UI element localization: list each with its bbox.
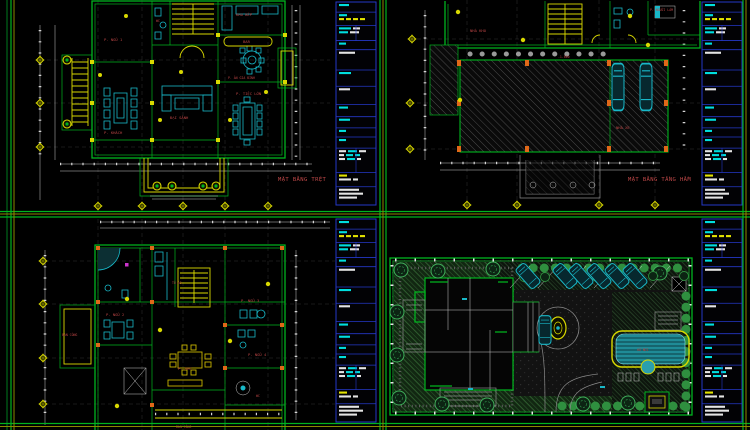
cad-viewer: P. NGỦ 1 WC KHU BẾP BAR P. ĂN GIA ĐÌNH P… xyxy=(0,0,750,430)
legend-text-bar xyxy=(705,371,710,373)
grid-axis-marker xyxy=(595,201,604,210)
grid-axis-marker xyxy=(264,202,273,211)
legend-text-bar xyxy=(705,119,716,121)
legend-text-bar xyxy=(705,43,712,45)
legend-text-bar xyxy=(339,52,355,54)
legend-text-bar xyxy=(705,88,716,90)
legend-text-bar xyxy=(719,178,724,180)
legend-text-bar xyxy=(714,150,723,152)
legend-text-bar xyxy=(339,72,351,74)
legend-text-bar xyxy=(348,367,357,369)
legend-text-bar xyxy=(705,197,723,199)
bush-icon xyxy=(541,273,550,282)
legend-text-bar xyxy=(357,375,361,377)
label-level: -1.600 xyxy=(558,55,570,59)
legend-text-bar xyxy=(705,107,714,109)
label-wc-upper: WC xyxy=(256,394,260,398)
tree-icon xyxy=(621,396,635,410)
legend-text-bar xyxy=(339,14,347,16)
legend-text-bar xyxy=(359,367,366,369)
hall-sofa xyxy=(162,86,212,111)
legend-text-bar xyxy=(339,248,348,250)
grid-axis-marker xyxy=(39,354,48,363)
legend-text-bar xyxy=(705,178,717,180)
legend-text-bar xyxy=(705,175,713,177)
legend-text-bar xyxy=(716,31,725,33)
tree-icon xyxy=(390,348,404,362)
legend-text-bar xyxy=(705,406,725,408)
legend-text-bar xyxy=(339,119,350,121)
fountain xyxy=(550,317,566,339)
grid-axis-marker xyxy=(36,99,45,108)
sheet-title-ground-floor: MẶT BẰNG TRỆT xyxy=(278,175,327,183)
legend-text-bar xyxy=(705,269,721,271)
legend-text-bar xyxy=(719,395,724,397)
tree-icon xyxy=(390,305,404,319)
label-banquet: P. TIỆC LỚN xyxy=(236,91,262,96)
legend-text-bar xyxy=(705,375,711,377)
legend-text-bar xyxy=(339,31,348,33)
legend-text-bar xyxy=(339,189,359,191)
legend-text-bar xyxy=(339,260,346,262)
tree-icon xyxy=(431,264,445,278)
grid-axis-marker xyxy=(513,201,522,210)
legend-text-bar xyxy=(360,235,365,237)
legend-text-bar xyxy=(339,414,357,416)
legend-text-bar xyxy=(339,88,350,90)
legend-text-bar xyxy=(339,371,344,373)
grid-axis-marker xyxy=(221,202,230,211)
label-living: P. KHÁCH xyxy=(104,130,123,135)
legend-text-bar xyxy=(726,235,731,237)
sheet-basement-plan: NHÀ KHO P. NGƯỜI LÀM -1.600 NHÀ XE MẶT B… xyxy=(410,0,700,205)
legend-text-bar xyxy=(705,189,725,191)
label-bedroom2: P. NGỦ 2 xyxy=(106,312,124,317)
legend-text-bar xyxy=(339,269,355,271)
tree-icon xyxy=(486,262,500,276)
legend-text-bar xyxy=(719,235,724,237)
legend-text-bar xyxy=(339,27,351,29)
legend-text-bar xyxy=(350,248,359,250)
legend-text-bar xyxy=(339,4,349,6)
legend-text-bar xyxy=(705,18,710,20)
legend-text-bar xyxy=(339,406,359,408)
legend-text-bar xyxy=(705,231,713,233)
cad-canvas: P. NGỦ 1 WC KHU BẾP BAR P. ĂN GIA ĐÌNH P… xyxy=(0,0,750,430)
legend-text-bar xyxy=(353,244,360,246)
tree-icon xyxy=(480,398,494,412)
legend-text-bar xyxy=(339,43,346,45)
legend-text-bar xyxy=(705,305,716,307)
legend-text-bar xyxy=(339,244,351,246)
legend-text-bar xyxy=(353,27,360,29)
living-room-furniture xyxy=(104,88,137,129)
legend-text-bar xyxy=(359,150,366,152)
label-pool: HỒ BƠI xyxy=(637,347,649,352)
grid-axis-marker xyxy=(36,143,45,152)
legend-text-bar xyxy=(360,18,365,20)
legend-text-bar xyxy=(719,244,726,246)
legend-text-bar xyxy=(716,248,725,250)
legend-text-bar xyxy=(719,18,724,20)
legend-text-bar xyxy=(339,18,344,20)
legend-text-bar xyxy=(339,150,346,152)
grid-axis-marker xyxy=(651,201,660,210)
legend-text-bar xyxy=(705,289,717,291)
legend-text-bar xyxy=(339,305,350,307)
label-maid-room: P. NGƯỜI LÀM xyxy=(650,7,673,12)
sheet-title-basement: MẶT BẰNG TẦNG HẦM xyxy=(628,175,691,183)
legend-text-bar xyxy=(705,347,712,349)
legend-text-bar xyxy=(348,150,357,152)
legend-text-bar xyxy=(705,244,717,246)
grid-axis-marker xyxy=(463,201,472,210)
tree-icon xyxy=(392,391,406,405)
legend-text-bar xyxy=(339,178,351,180)
legend-text-bar xyxy=(705,248,714,250)
label-kitchen: KHU BẾP xyxy=(236,12,253,17)
grid-axis-marker xyxy=(406,99,415,108)
legend-text-bar xyxy=(725,367,732,369)
legend-text-bar xyxy=(705,27,717,29)
legend-text-bar xyxy=(339,158,345,160)
legend-text-bar xyxy=(705,193,729,195)
label-wardrobe: TỦ ÁO xyxy=(172,280,182,285)
legend-text-bar xyxy=(705,392,713,394)
legend-text-bar xyxy=(346,18,351,20)
grid-axis-marker xyxy=(406,145,415,154)
legend-text-bar xyxy=(346,235,351,237)
legend-text-bar xyxy=(705,367,712,369)
legend-text-bar xyxy=(705,260,712,262)
legend-text-bar xyxy=(712,154,719,156)
legend-text-bar xyxy=(339,356,346,358)
legend-text-bar xyxy=(339,410,363,412)
tree-icon xyxy=(435,397,449,411)
label-bar: BAR xyxy=(243,39,251,44)
legend-text-bar xyxy=(339,324,348,326)
legend-text-bar xyxy=(346,154,353,156)
car-icon xyxy=(640,64,652,111)
legend-text-bar xyxy=(339,336,350,338)
legend-text-bar xyxy=(353,235,358,237)
legend-text-bar xyxy=(705,235,710,237)
label-balcony-left: BAN CÔNG xyxy=(62,332,77,337)
legend-text-bar xyxy=(705,356,712,358)
banquet-table xyxy=(233,97,262,145)
legend-text-bar xyxy=(705,139,712,141)
legend-text-bar xyxy=(705,130,712,132)
legend-text-bar xyxy=(339,193,363,195)
legend-text-bar xyxy=(705,154,710,156)
legend-text-bar xyxy=(705,410,729,412)
legend-text-bar xyxy=(725,150,732,152)
grid-axis-marker xyxy=(179,202,188,211)
bush-icon xyxy=(649,272,658,281)
tree-icon xyxy=(576,397,590,411)
legend-text-bar xyxy=(712,371,719,373)
legend-text-bar xyxy=(339,395,351,397)
legend-text-bar xyxy=(713,375,721,377)
legend-text-bar xyxy=(346,371,353,373)
legend-text-bar xyxy=(712,18,717,20)
legend-text-bar xyxy=(705,158,711,160)
label-bedroom3: P. NGỦ 3 xyxy=(241,298,259,303)
legend-text-bar xyxy=(339,392,347,394)
legend-text-bar xyxy=(339,289,351,291)
legend-text-bar xyxy=(705,4,715,6)
legend-text-bar xyxy=(339,154,344,156)
bush-icon xyxy=(680,272,689,281)
legend-text-bar xyxy=(347,375,355,377)
legend-text-bar xyxy=(339,139,346,141)
legend-text-bar xyxy=(705,150,712,152)
legend-text-bar xyxy=(723,158,727,160)
legend-text-bar xyxy=(712,235,717,237)
legend-text-bar xyxy=(705,221,715,223)
legend-text-bar xyxy=(723,375,727,377)
label-storage: NHÀ KHO xyxy=(470,28,487,33)
label-garage: NHÀ XE xyxy=(616,125,630,130)
label-bedroom1: P. NGỦ 1 xyxy=(104,37,123,42)
label-bedroom4: P. NGỦ 4 xyxy=(248,352,267,357)
legend-text-bar xyxy=(726,18,731,20)
legend-text-bar xyxy=(705,31,714,33)
grid-axis-marker xyxy=(36,56,45,65)
legend-text-bar xyxy=(705,395,717,397)
sheet-ground-floor-plan: P. NGỦ 1 WC KHU BẾP BAR P. ĂN GIA ĐÌNH P… xyxy=(40,0,330,206)
grid-axis-marker xyxy=(408,35,417,44)
label-wc-ground: WC xyxy=(156,19,160,23)
legend-text-bar xyxy=(353,178,358,180)
legend-text-bar xyxy=(357,158,361,160)
legend-text-bar xyxy=(353,395,358,397)
legend-text-bar xyxy=(339,231,347,233)
legend-text-bar xyxy=(714,367,723,369)
sheet-upper-floor-plan: TỦ ÁO P. NGỦ 2 P. SHC P. NGỦ 3 P. NGỦ 4 … xyxy=(45,219,335,430)
legend-text-bar xyxy=(705,414,723,416)
grid-axis-marker xyxy=(138,202,147,211)
grid-axis-marker xyxy=(94,202,103,211)
legend-text-bar xyxy=(339,347,346,349)
legend-text-bar xyxy=(339,175,347,177)
legend-text-bar xyxy=(347,158,355,160)
grid-axis-marker xyxy=(39,257,48,266)
legend-text-bar xyxy=(339,367,346,369)
legend-text-bar xyxy=(719,27,726,29)
legend-text-bar xyxy=(339,130,346,132)
legend-text-bar xyxy=(339,221,349,223)
legend-text-bar xyxy=(339,375,345,377)
car-icon xyxy=(539,316,551,345)
legend-text-bar xyxy=(350,31,359,33)
tree-icon xyxy=(394,263,408,277)
label-family-dining: P. ĂN GIA ĐÌNH xyxy=(228,75,255,80)
legend-text-bar xyxy=(705,72,717,74)
legend-text-bar xyxy=(713,158,721,160)
legend-text-bar xyxy=(705,324,714,326)
legend-text-bar xyxy=(705,14,713,16)
legend-text-bar xyxy=(339,235,344,237)
label-hall: ĐẠI SẢNH xyxy=(170,115,189,120)
car-icon xyxy=(612,64,624,111)
garden-hut xyxy=(645,392,669,412)
legend-text-bar xyxy=(705,52,721,54)
legend-text-bar xyxy=(353,18,358,20)
label-family-room: P. SHC xyxy=(178,366,192,371)
legend-text-bar xyxy=(339,107,348,109)
legend-text-bar xyxy=(339,197,357,199)
legend-text-bar xyxy=(705,336,716,338)
